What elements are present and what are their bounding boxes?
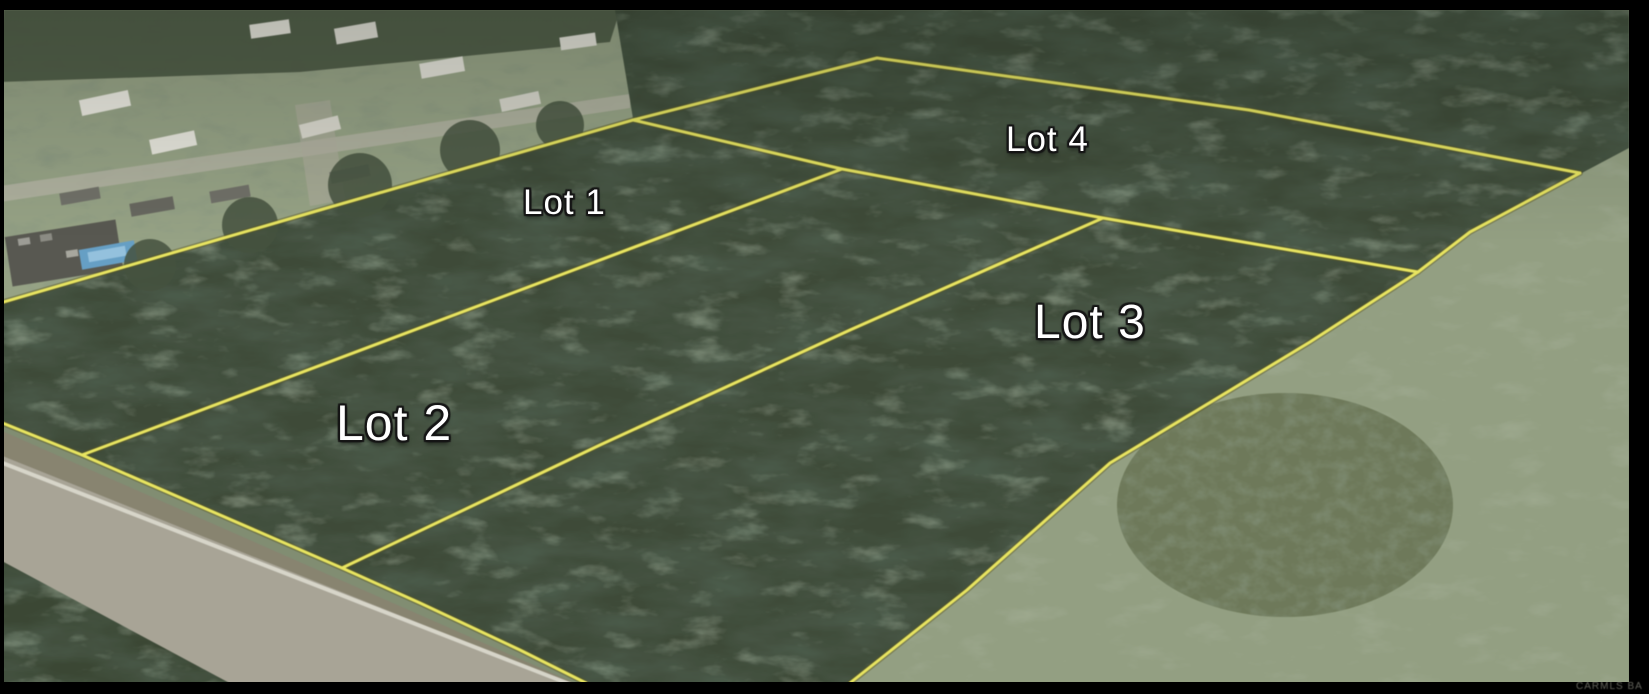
lot3-label: Lot 3 (1034, 295, 1146, 350)
letterbox-bottom (0, 682, 1649, 694)
aerial-photo (0, 0, 1649, 694)
letterbox-right (1629, 0, 1649, 694)
letterbox-top (0, 0, 1649, 10)
aerial-lot-map: Lot 1 Lot 2 Lot 3 Lot 4 CARMLS BA (0, 0, 1649, 694)
letterbox-left (0, 0, 4, 694)
tone-overlay (0, 0, 1649, 694)
lot2-label: Lot 2 (336, 394, 452, 452)
lot4-label: Lot 4 (1006, 120, 1089, 160)
lot1-label: Lot 1 (523, 183, 606, 223)
watermark: CARMLS BA (1576, 681, 1649, 692)
